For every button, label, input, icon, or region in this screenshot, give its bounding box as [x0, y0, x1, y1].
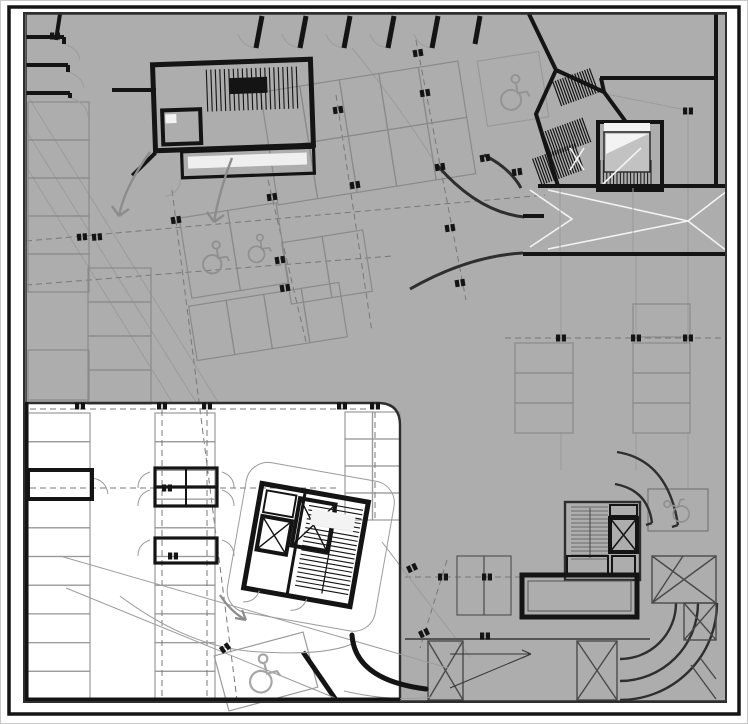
- floor-plan-page: [0, 0, 748, 724]
- floor-plan-canvas: [0, 0, 748, 724]
